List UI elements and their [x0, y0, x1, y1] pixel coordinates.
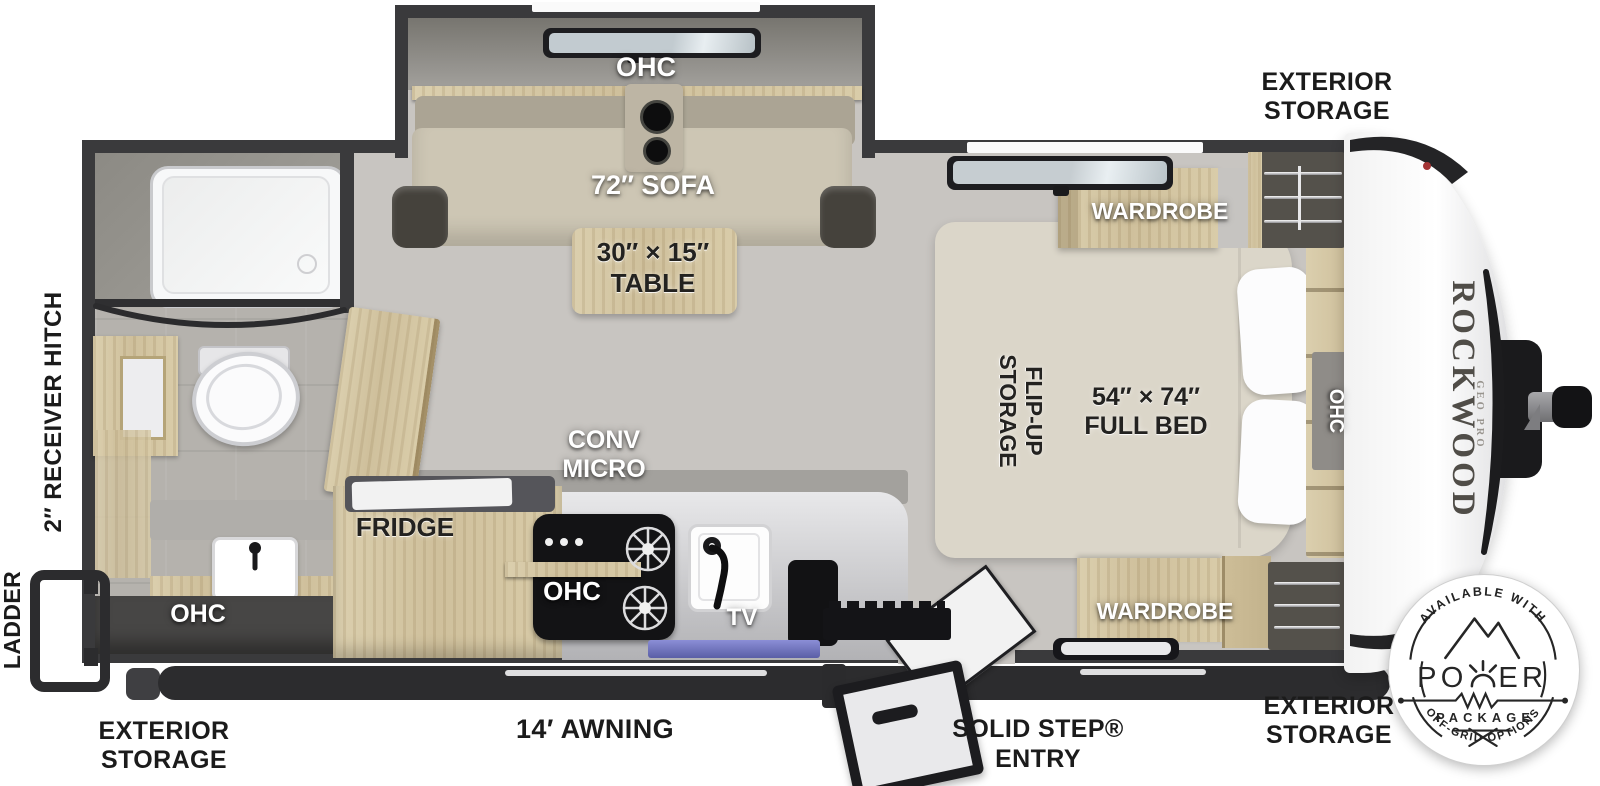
badge-power-right: ER [1498, 662, 1547, 694]
flip-up-line1: FLIP-UP [1021, 326, 1047, 496]
bed-ohc-label: OHC [1323, 376, 1347, 446]
ext-tr-line1: EXTERIOR [1177, 68, 1477, 97]
bath-faucet [249, 542, 261, 568]
receiver-hitch-label: 2″ RECEIVER HITCH [40, 262, 68, 562]
sofa-label: 72″ SOFA [503, 170, 803, 201]
ladder-label: LADDER [0, 550, 25, 690]
ext-br-line2: STORAGE [1179, 721, 1479, 750]
jack-foot [1524, 404, 1540, 430]
exterior-storage-bottom-left-label: EXTERIOR STORAGE [14, 717, 314, 774]
solid-step-entry-label: SOLID STEP® ENTRY [888, 714, 1188, 774]
cap-window-swoosh [1484, 272, 1502, 552]
table-size: 30″ × 15″ [503, 237, 803, 268]
tv-label: TV [592, 604, 892, 632]
ext-bl-line1: EXTERIOR [14, 717, 314, 746]
model-text: GEO PRO [1471, 345, 1485, 485]
cap-marker-light [1423, 162, 1431, 170]
table-word: TABLE [503, 268, 803, 299]
fridge-label: FRIDGE [255, 512, 555, 542]
shower-door-curve [96, 306, 344, 325]
flip-up-storage-label: FLIP-UP STORAGE [993, 326, 1047, 496]
table-label: 30″ × 15″ TABLE [503, 237, 803, 298]
ext-br-line1: EXTERIOR [1179, 692, 1479, 721]
exterior-storage-bottom-right-label: EXTERIOR STORAGE [1179, 692, 1479, 749]
flip-up-line2: STORAGE [995, 326, 1021, 496]
conv-line2: MICRO [454, 455, 754, 484]
ext-bl-line2: STORAGE [14, 746, 314, 775]
wardrobe-bottom-label: WARDROBE [1015, 598, 1315, 625]
bath-ohc-label: OHC [48, 600, 348, 629]
mountains-icon [1445, 619, 1518, 658]
solid-step-line2: ENTRY [888, 744, 1188, 774]
power-sun-icon [1470, 661, 1496, 686]
badge-top-arc-text: AVAILABLE WITH [1416, 584, 1549, 626]
wardrobe-top-label: WARDROBE [1010, 198, 1310, 225]
conv-micro-label: CONV MICRO [454, 426, 754, 483]
kitchen-ohc-label: OHC [422, 576, 722, 606]
ext-tr-line2: STORAGE [1177, 97, 1477, 126]
conv-line1: CONV [454, 426, 754, 455]
badge-power-left: PO [1417, 662, 1468, 694]
dinette-ohc-label: OHC [496, 52, 796, 83]
awning-label: 14′ AWNING [445, 714, 745, 745]
floor-plan: ROCKWOOD GEO PRO AVAILABLE WITH PO ER [0, 0, 1600, 786]
solid-step-line1: SOLID STEP® [888, 714, 1188, 744]
cap-trim-top [1350, 137, 1468, 184]
exterior-storage-top-right-label: EXTERIOR STORAGE [1177, 68, 1477, 126]
